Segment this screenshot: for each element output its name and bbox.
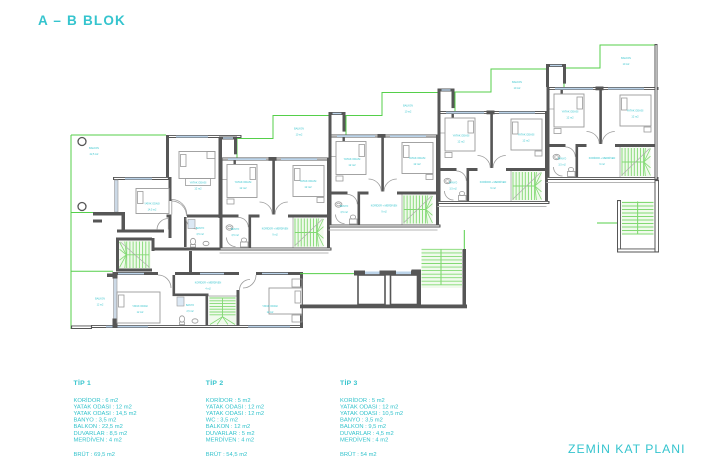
svg-text:MERDİVEN : 4 m2: MERDİVEN : 4 m2 — [74, 436, 122, 443]
svg-text:BANYO: BANYO — [196, 227, 205, 230]
svg-text:DUVARLAR : 4,5 m2: DUVARLAR : 4,5 m2 — [340, 431, 394, 437]
svg-text:12 m2: 12 m2 — [413, 162, 421, 166]
svg-text:TİP 1: TİP 1 — [74, 379, 92, 387]
svg-text:12 m2: 12 m2 — [348, 163, 356, 167]
svg-text:YATAK ODASI: YATAK ODASI — [344, 157, 361, 161]
svg-text:3,5 m2: 3,5 m2 — [340, 211, 348, 214]
svg-text:YATAK ODASI : 12 m2: YATAK ODASI : 12 m2 — [206, 411, 264, 417]
svg-text:BALKON: BALKON — [512, 81, 522, 84]
svg-text:KORİDOR + MERDİVEN: KORİDOR + MERDİVEN — [262, 228, 289, 231]
svg-text:BALKON: BALKON — [621, 57, 631, 60]
svg-text:KORİDOR : 5 m2: KORİDOR : 5 m2 — [206, 397, 251, 404]
svg-text:12 m2: 12 m2 — [631, 115, 639, 119]
svg-text:YATAK ODASI: YATAK ODASI — [518, 133, 535, 137]
svg-text:KORİDOR : 5 m2: KORİDOR : 5 m2 — [340, 397, 385, 404]
svg-text:KORİDOR : 6 m2: KORİDOR : 6 m2 — [74, 397, 119, 404]
svg-text:KORİDOR + MERDİVEN: KORİDOR + MERDİVEN — [589, 157, 616, 160]
svg-text:10 m2: 10 m2 — [514, 87, 521, 90]
svg-text:BRÜT : 69,5 m2: BRÜT : 69,5 m2 — [74, 451, 115, 458]
svg-text:A – B BLOK: A – B BLOK — [38, 13, 126, 28]
svg-text:BALKON: BALKON — [89, 147, 99, 150]
svg-text:BALKON: BALKON — [95, 298, 105, 301]
svg-text:YATAK ODASI: YATAK ODASI — [235, 180, 252, 184]
svg-text:WC : 3,5 m2: WC : 3,5 m2 — [206, 418, 238, 424]
svg-text:10 m2: 10 m2 — [296, 134, 303, 137]
svg-text:BANYO: BANYO — [340, 205, 349, 208]
svg-text:BANYO: BANYO — [231, 228, 240, 231]
svg-text:YATAK ODASI : 12 m2: YATAK ODASI : 12 m2 — [206, 404, 264, 410]
svg-text:BRÜT : 54,5 m2: BRÜT : 54,5 m2 — [206, 451, 247, 458]
svg-text:12 m2: 12 m2 — [522, 139, 530, 143]
svg-text:ZEMİN KAT PLANI: ZEMİN KAT PLANI — [568, 442, 686, 456]
svg-text:BANYO : 3,5 m2: BANYO : 3,5 m2 — [74, 418, 117, 424]
svg-text:BALKON : 12 m2: BALKON : 12 m2 — [206, 424, 250, 430]
svg-text:YATAK ODASI: YATAK ODASI — [300, 179, 317, 183]
svg-text:YATAK ODASI : 12 m2: YATAK ODASI : 12 m2 — [74, 404, 132, 410]
svg-text:DUVARLAR : 5 m2: DUVARLAR : 5 m2 — [206, 431, 255, 437]
svg-text:KORİDOR + MERDİVEN: KORİDOR + MERDİVEN — [371, 205, 398, 208]
svg-text:12 m2: 12 m2 — [239, 186, 247, 190]
svg-text:BANYO: BANYO — [186, 304, 194, 307]
svg-text:14,5 m2: 14,5 m2 — [148, 209, 157, 212]
svg-text:MERDİVEN : 4 m2: MERDİVEN : 4 m2 — [340, 436, 388, 443]
svg-text:YATAK ODASI: YATAK ODASI — [453, 134, 470, 138]
svg-text:BANYO: BANYO — [449, 182, 458, 185]
svg-text:YATAK ODASI: YATAK ODASI — [144, 203, 160, 206]
svg-text:YATAK ODASI: YATAK ODASI — [409, 156, 426, 160]
svg-text:12 m2: 12 m2 — [194, 187, 202, 191]
svg-text:BALKON: BALKON — [294, 128, 304, 131]
svg-text:9 m2: 9 m2 — [599, 163, 605, 166]
svg-text:BALKON : 9,5 m2: BALKON : 9,5 m2 — [340, 424, 386, 430]
svg-text:KORİDOR + MERDİVEN: KORİDOR + MERDİVEN — [480, 181, 507, 184]
svg-text:9 m2: 9 m2 — [381, 211, 387, 214]
svg-text:BANYO: BANYO — [558, 158, 567, 161]
svg-text:BALKON: BALKON — [403, 105, 413, 108]
svg-text:9 m2: 9 m2 — [490, 187, 496, 190]
svg-text:BRÜT : 54 m2: BRÜT : 54 m2 — [340, 451, 377, 458]
svg-text:10 m2: 10 m2 — [405, 111, 412, 114]
svg-text:2,5 m2: 2,5 m2 — [186, 311, 194, 313]
svg-text:3,5 m2: 3,5 m2 — [449, 188, 457, 191]
svg-text:YATAK ODASI: YATAK ODASI — [562, 110, 579, 114]
svg-text:12 m2: 12 m2 — [97, 304, 104, 307]
svg-text:DUVARLAR : 8,5 m2: DUVARLAR : 8,5 m2 — [74, 431, 128, 437]
svg-text:YATAK ODASI: YATAK ODASI — [262, 305, 278, 308]
svg-text:9 m2: 9 m2 — [272, 234, 278, 237]
svg-text:YATAK ODASI : 12 m2: YATAK ODASI : 12 m2 — [340, 404, 398, 410]
svg-text:3,5 m2: 3,5 m2 — [558, 164, 566, 167]
svg-text:BANYO : 3,5 m2: BANYO : 3,5 m2 — [340, 418, 383, 424]
svg-text:22,5 m2: 22,5 m2 — [90, 153, 99, 156]
svg-text:MERDİVEN : 4 m2: MERDİVEN : 4 m2 — [206, 436, 254, 443]
svg-text:3,5 m2: 3,5 m2 — [231, 234, 239, 237]
svg-text:BALKON : 22,5 m2: BALKON : 22,5 m2 — [74, 424, 123, 430]
svg-text:12 m2: 12 m2 — [137, 311, 144, 314]
svg-text:12 m2: 12 m2 — [304, 185, 312, 189]
svg-text:TİP 3: TİP 3 — [340, 379, 358, 387]
svg-text:4 m2: 4 m2 — [205, 288, 211, 291]
svg-text:3,5 m2: 3,5 m2 — [196, 233, 204, 236]
svg-text:12 m2: 12 m2 — [566, 116, 574, 120]
svg-text:YATAK ODASI : 14,5 m2: YATAK ODASI : 14,5 m2 — [74, 411, 137, 417]
svg-text:12 m2: 12 m2 — [267, 311, 274, 314]
svg-text:YATAK ODASI : 10,5 m2: YATAK ODASI : 10,5 m2 — [340, 411, 403, 417]
svg-text:12 m2: 12 m2 — [457, 140, 465, 144]
svg-text:YATAK ODASI: YATAK ODASI — [627, 109, 644, 113]
svg-text:YATAK ODASI: YATAK ODASI — [190, 181, 207, 185]
svg-text:TİP 2: TİP 2 — [206, 379, 224, 387]
svg-text:10 m2: 10 m2 — [623, 63, 630, 66]
svg-text:YATAK ODASI: YATAK ODASI — [132, 305, 148, 308]
svg-text:KORİDOR + MERDİVEN: KORİDOR + MERDİVEN — [195, 282, 222, 285]
